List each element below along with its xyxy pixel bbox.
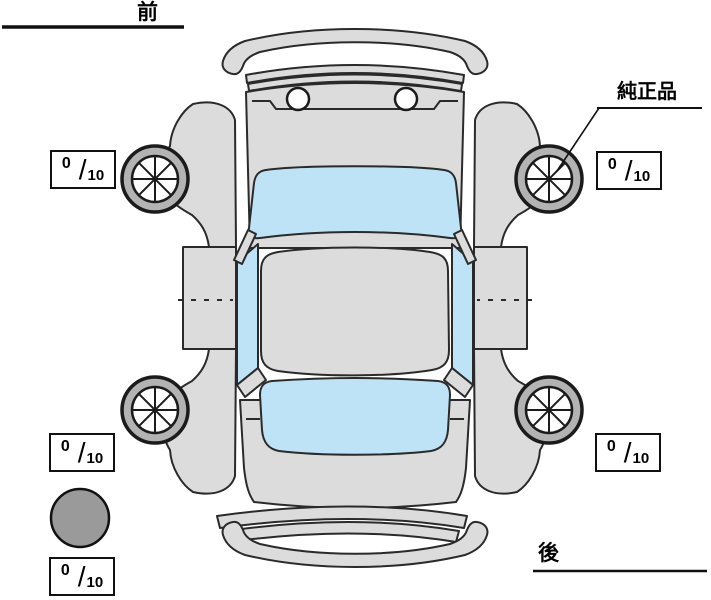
- tread-box-front-right: 0/10: [596, 151, 662, 190]
- tread-separator: /: [625, 155, 633, 187]
- tread-box-rear-right: 0/10: [595, 433, 661, 472]
- roof-panel: [261, 248, 449, 376]
- tread-separator: /: [624, 437, 632, 469]
- rear-bumper-strip-2: [226, 522, 459, 542]
- car-top-view: [0, 0, 711, 600]
- tread-value: 0: [607, 438, 616, 456]
- tread-value: 0: [62, 155, 71, 173]
- tread-box-front-left: 0/10: [50, 150, 116, 189]
- rear-window-glass: [260, 378, 450, 455]
- wheel-front-left: [122, 146, 188, 212]
- wheel-front-right: [516, 146, 582, 212]
- tread-separator: /: [78, 437, 86, 469]
- tread-value: 0: [61, 562, 70, 580]
- spare-tire-indicator: [51, 489, 109, 547]
- tread-max: 10: [87, 574, 104, 591]
- tread-value: 0: [61, 438, 70, 456]
- vehicle-condition-diagram: 前 後 純正品 0/10 0/10 0/10 0/10 0/10: [0, 0, 711, 600]
- wheel-rear-right: [516, 377, 582, 443]
- hood-circle-right: [395, 88, 417, 110]
- tread-max: 10: [87, 450, 104, 467]
- tread-value: 0: [608, 156, 617, 174]
- rear-label: 後: [538, 543, 559, 564]
- wheel-rear-left: [122, 377, 188, 443]
- windshield-glass: [249, 166, 462, 238]
- genuine-parts-label: 純正品: [617, 82, 677, 102]
- tread-max: 10: [633, 450, 650, 467]
- tread-max: 10: [88, 167, 105, 184]
- front-label: 前: [137, 2, 158, 23]
- tread-box-rear-left: 0/10: [49, 433, 115, 472]
- tread-separator: /: [78, 561, 86, 593]
- tread-box-spare: 0/10: [49, 557, 115, 596]
- hood-circle-left: [287, 88, 309, 110]
- tread-max: 10: [634, 168, 651, 185]
- tread-separator: /: [79, 154, 87, 186]
